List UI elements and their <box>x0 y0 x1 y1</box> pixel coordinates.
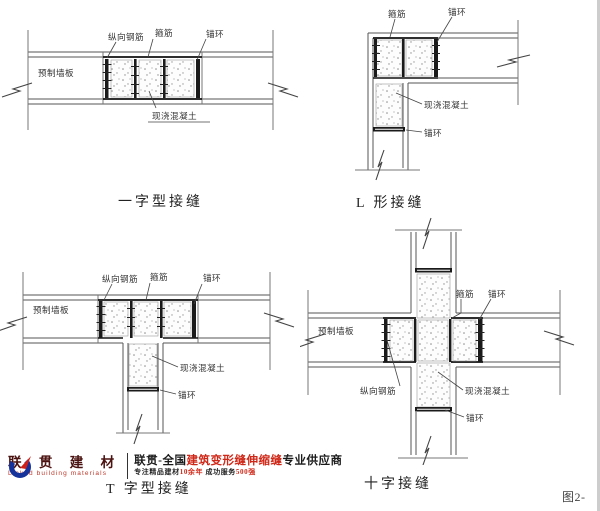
subline-part3: 成功服务 <box>203 468 236 476</box>
label-stirrup: 箍筋 <box>155 27 173 38</box>
rebar-bar <box>134 59 137 98</box>
cross-joint-diagram: 箍筋 锚环 预制墙板 纵向钢筋 现浇混凝土 锚环 <box>300 215 600 465</box>
label-precast-panel: 预制墙板 <box>38 67 74 78</box>
joint-core <box>98 300 198 392</box>
caption-cross-joint: 十字接缝 <box>364 473 432 493</box>
caption-straight-joint: 一字型接缝 <box>118 191 203 211</box>
break-mark-bottom <box>134 414 142 444</box>
label-stirrup: 箍筋 <box>456 288 474 299</box>
tagline-part1: 联贯-全国 <box>134 455 186 467</box>
label-longitudinal-rebar: 纵向钢筋 <box>360 385 396 396</box>
rebar-bar <box>130 301 133 338</box>
logo-divider <box>127 453 128 479</box>
break-mark-right <box>264 313 294 327</box>
label-cast-in-place: 现浇混凝土 <box>180 362 225 373</box>
break-mark-right <box>497 55 530 67</box>
label-anchor-ring-top: 锚环 <box>203 272 221 283</box>
caption-t-joint: T 字型接缝 <box>106 478 192 498</box>
break-mark-bottom <box>376 150 384 180</box>
label-longitudinal-rebar: 纵向钢筋 <box>108 31 144 42</box>
label-longitudinal-rebar: 纵向钢筋 <box>102 273 138 284</box>
subline-part4: 500强 <box>236 468 256 476</box>
label-cast-in-place: 现浇混凝土 <box>152 110 197 121</box>
label-precast-panel: 预制墙板 <box>318 325 354 336</box>
label-anchor-ring-top: 锚环 <box>448 6 466 17</box>
anchor-bar <box>192 301 196 338</box>
label-anchor-ring-bottom: 锚环 <box>424 127 442 138</box>
logo-tagline-block: 联贯-全国建筑变形缝伸缩缝专业供应商 专注精品建材10余年 成功服务500强 <box>134 455 342 477</box>
joint-core <box>373 38 438 132</box>
rebar-bar <box>163 59 166 98</box>
subline: 专注精品建材10余年 成功服务500强 <box>134 468 342 477</box>
anchor-bar <box>434 39 438 77</box>
break-mark-bottom <box>423 436 431 465</box>
anchor-bar <box>196 59 200 98</box>
company-logo: 联 贯 建 材 Linked building materials 联贯-全国建… <box>8 453 342 479</box>
label-cast-in-place: 现浇混凝土 <box>465 385 510 396</box>
tagline: 联贯-全国建筑变形缝伸缩缝专业供应商 <box>134 455 342 468</box>
t-joint-diagram: 纵向钢筋 箍筋 锚环 预制墙板 现浇混凝土 锚环 <box>0 215 300 460</box>
label-anchor-ring: 锚环 <box>206 28 224 39</box>
joint-core <box>103 57 202 99</box>
caption-l-joint: L 形接缝 <box>356 192 425 212</box>
label-stirrup: 箍筋 <box>150 271 168 282</box>
label-anchor-ring-bottom: 锚环 <box>466 412 484 423</box>
logo-icon <box>8 453 33 480</box>
tagline-part2: 建筑变形缝伸缩缝 <box>186 455 282 467</box>
drawing-sheet: 纵向钢筋 箍筋 锚环 预制墙板 现浇混凝土 <box>0 0 600 511</box>
label-precast-panel: 预制墙板 <box>33 304 69 315</box>
label-cast-in-place: 现浇混凝土 <box>424 99 469 110</box>
label-anchor-ring-top: 锚环 <box>488 288 506 299</box>
subline-part2: 10余年 <box>180 468 203 476</box>
straight-joint-diagram: 纵向钢筋 箍筋 锚环 预制墙板 现浇混凝土 <box>0 0 300 215</box>
rebar-bar <box>160 301 163 338</box>
tagline-part3: 专业供应商 <box>282 455 342 467</box>
l-joint-diagram: 箍筋 锚环 现浇混凝土 锚环 <box>300 0 600 215</box>
break-mark-left <box>300 334 325 348</box>
label-stirrup: 箍筋 <box>388 8 406 19</box>
break-mark-top <box>423 218 431 249</box>
break-mark-right <box>544 331 574 345</box>
subline-part1: 专注精品建材 <box>134 468 180 476</box>
label-anchor-ring-bottom: 锚环 <box>178 389 196 400</box>
figure-number: 图2- <box>562 488 586 505</box>
